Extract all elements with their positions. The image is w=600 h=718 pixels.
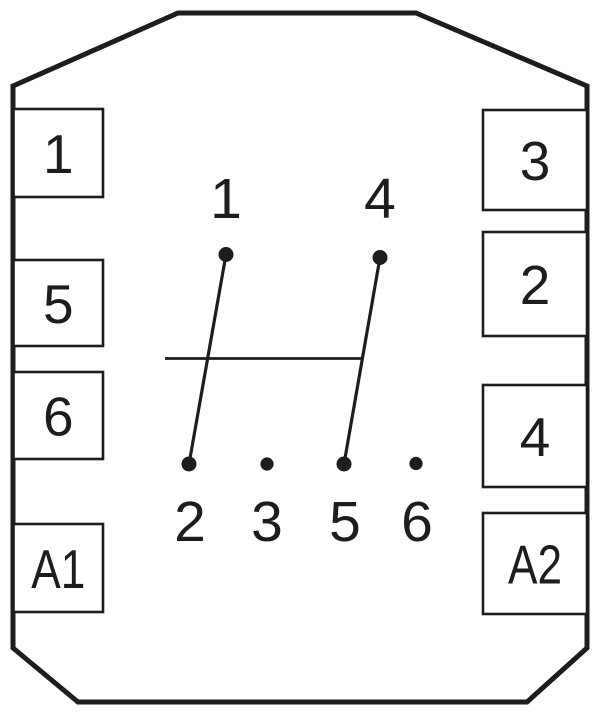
relay-pin-diagram: 156A1324A2142356 bbox=[0, 0, 600, 718]
terminal-box-label-2: 2 bbox=[520, 254, 551, 316]
terminal-box-5: 5 bbox=[14, 260, 104, 346]
pin-dot-3 bbox=[260, 457, 273, 470]
pin-dot-1 bbox=[219, 247, 234, 262]
pin-dot-4 bbox=[373, 250, 388, 265]
terminal-box-A2: A2 bbox=[483, 513, 587, 614]
pin-label-5: 5 bbox=[329, 490, 361, 554]
terminal-box-label-A2: A2 bbox=[508, 534, 562, 596]
pin-dot-5 bbox=[337, 457, 352, 472]
terminal-box-label-1: 1 bbox=[43, 123, 74, 185]
terminal-box-1: 1 bbox=[14, 109, 104, 197]
pin-dot-2 bbox=[182, 457, 197, 472]
terminal-box-A1: A1 bbox=[14, 524, 104, 612]
terminal-box-2: 2 bbox=[483, 232, 587, 336]
pin-label-3: 3 bbox=[251, 490, 283, 554]
pin-dot-6 bbox=[409, 457, 422, 470]
pin-label-2: 2 bbox=[174, 490, 206, 554]
pin-diagram-svg: 156A1324A2142356 bbox=[0, 0, 600, 718]
terminal-box-label-3: 3 bbox=[520, 130, 551, 192]
terminal-box-label-A1: A1 bbox=[31, 538, 85, 600]
terminal-box-label-6: 6 bbox=[43, 386, 74, 448]
terminal-box-label-4: 4 bbox=[520, 406, 551, 468]
pin-label-4: 4 bbox=[364, 167, 396, 231]
pin-label-1: 1 bbox=[210, 167, 242, 231]
terminal-box-4: 4 bbox=[483, 385, 587, 487]
terminal-box-label-5: 5 bbox=[43, 273, 74, 335]
terminal-box-6: 6 bbox=[14, 372, 104, 459]
pin-label-6: 6 bbox=[401, 490, 433, 554]
terminal-box-3: 3 bbox=[483, 110, 587, 210]
